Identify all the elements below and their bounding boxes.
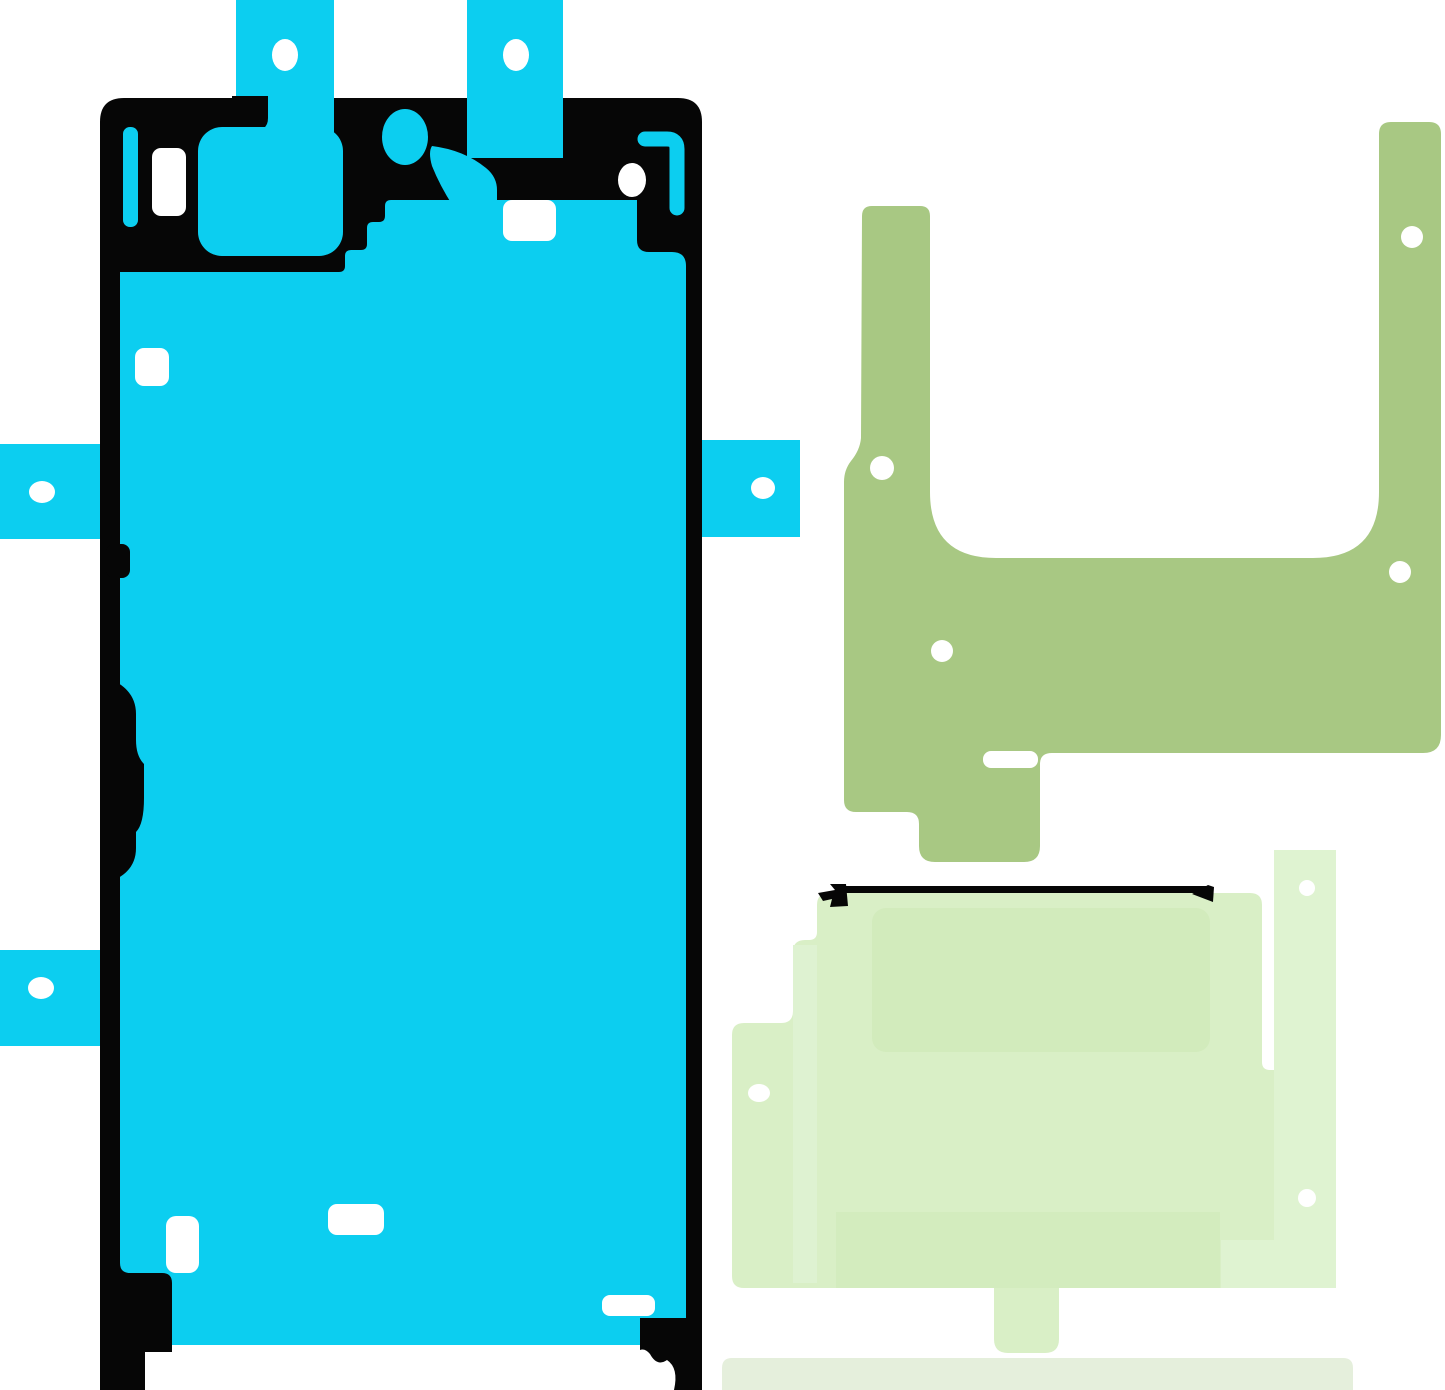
liner-line [846,886,1208,893]
hole-sheet-left [748,1084,770,1102]
cutout-sensor-circle [618,163,646,197]
earpiece-slot [123,127,138,227]
hole-sheet-top-right [1299,880,1315,896]
cutout-bottom-center [328,1204,384,1235]
hole-bracket-right-top [1401,226,1423,248]
sheet-right-column [1274,850,1336,1288]
cutout-top-left [152,148,186,216]
adhesive-kit-image [0,0,1445,1390]
tab-right [694,440,800,537]
interior-adhesive-area [120,200,686,1345]
sheet-right-corner [1221,1240,1336,1288]
hole-tab-top-left [272,39,298,71]
bracket-slit [983,751,1038,768]
cutout-bottom-left [166,1216,199,1273]
cutout-left-edge [135,348,169,386]
sheet-adhesive [732,850,1336,1353]
hole-tab-left-lower [28,977,54,999]
front-camera-hole [382,109,428,165]
bottom-strip-adhesive [722,1358,1353,1390]
adhesive-kit-canvas [0,0,1445,1390]
bottom-liner-step [145,1352,172,1390]
bracket-adhesive [844,122,1441,862]
border-notch-over-tab [232,96,268,130]
top-left-adhesive-island [198,127,343,256]
tab-top-right-connector [467,96,563,158]
hole-bracket-right-low [1389,561,1411,583]
hole-tab-right [751,477,775,499]
bracket-outline [844,122,1441,862]
tab-left-lower [0,950,108,1046]
cutout-top-middle [503,200,556,241]
hole-tab-left-upper [29,481,55,503]
cutout-bottom-right [602,1295,655,1316]
hole-tab-top-right [503,39,529,71]
bottom-liner-band [172,1345,686,1390]
display-frame-adhesive [0,0,800,1390]
hole-bracket-left-arm [870,456,894,480]
sheet-bottom-layer [836,1212,1220,1288]
hole-bracket-band [931,640,953,662]
hole-sheet-low-right [1298,1189,1316,1207]
sheet-left-strip [793,945,817,1283]
left-border-bump-small [106,544,130,578]
sheet-inner-layer [872,908,1210,1052]
